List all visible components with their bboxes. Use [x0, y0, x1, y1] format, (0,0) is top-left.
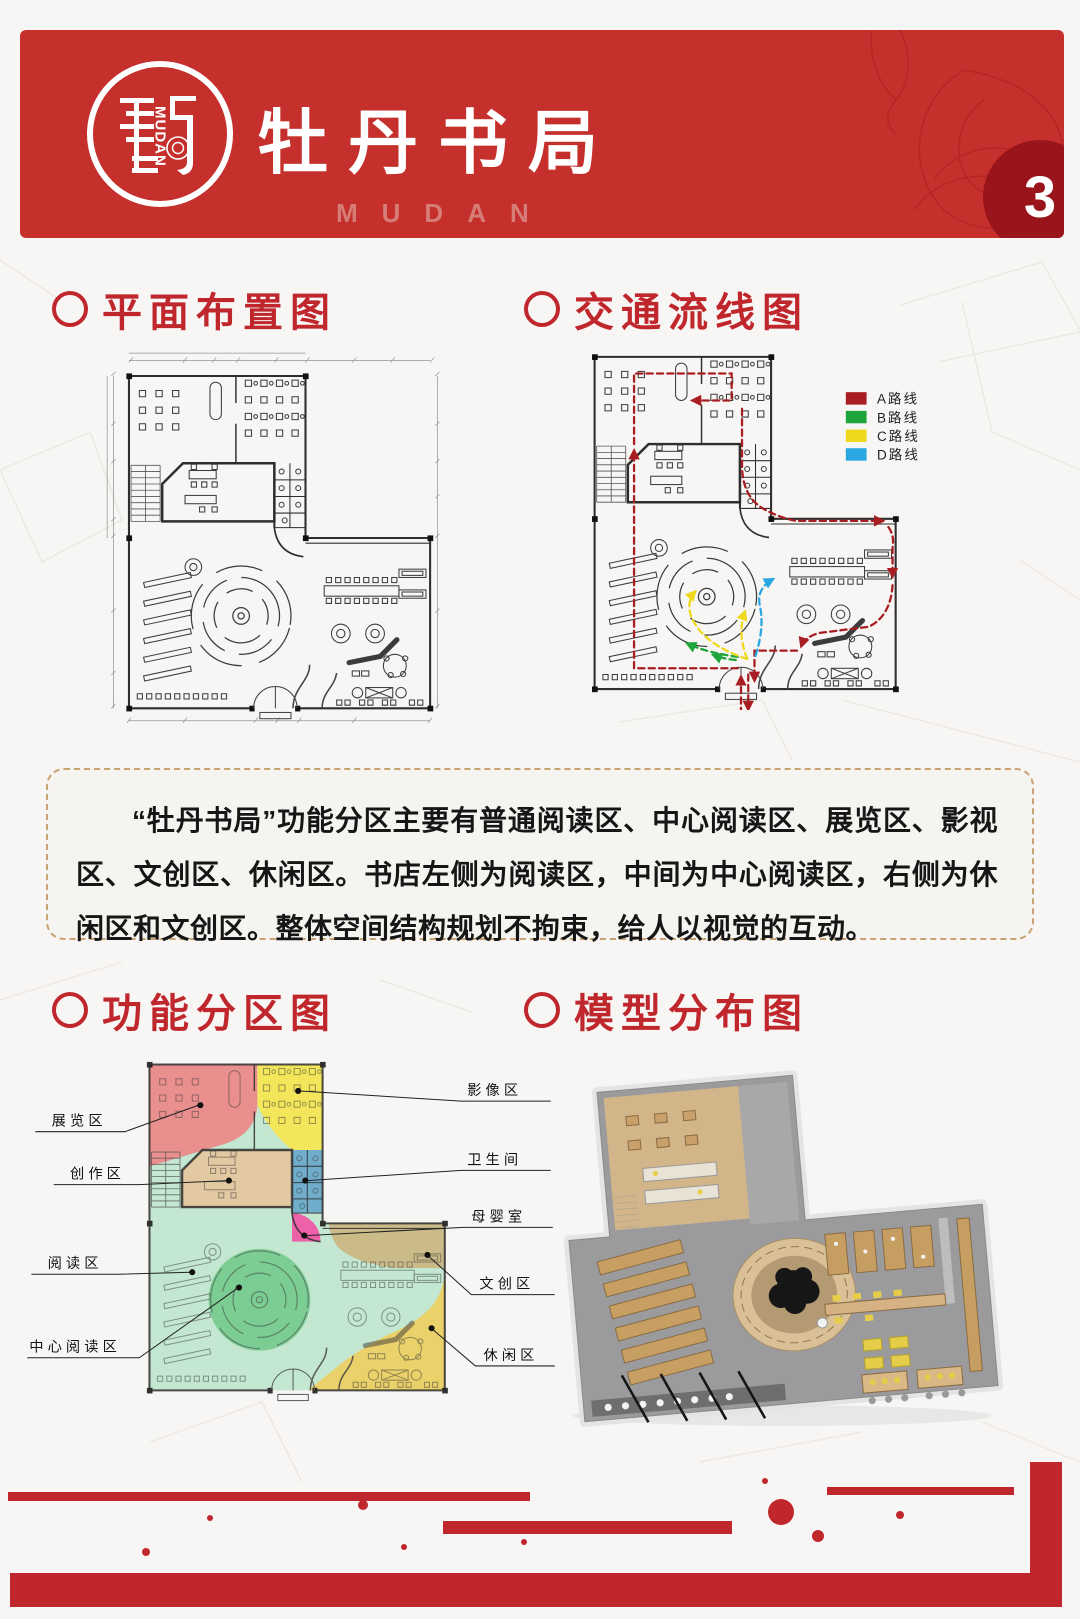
route-lines	[634, 373, 893, 710]
section-title: 交通流线图	[574, 280, 809, 338]
logo-vertical-text: MUDAN	[152, 106, 169, 167]
header-banner: MUDAN 牡丹书局 MUDAN 3	[20, 30, 1064, 238]
zone-label-exhibition: 展览区	[52, 1113, 107, 1130]
floor-plan-drawing	[104, 349, 453, 727]
zone-label-nursing: 母婴室	[471, 1208, 526, 1225]
section-title: 平面布置图	[102, 280, 337, 338]
brand-subtitle: MUDAN	[336, 198, 553, 229]
section-title: 功能分区图	[102, 981, 337, 1039]
zone-label-leisure: 休闲区	[483, 1347, 538, 1364]
legend-swatch-b	[846, 411, 867, 423]
route-a-path	[634, 373, 893, 710]
route-d-path	[756, 579, 774, 656]
circle-bullet-icon	[52, 992, 88, 1028]
zone-label-restroom: 卫生间	[467, 1151, 522, 1168]
zone-central-reading	[209, 1249, 311, 1351]
description-box: “牡丹书局”功能分区主要有普通阅读区、中心阅读区、展览区、影视区、文创区、休闲区…	[46, 768, 1034, 940]
description-text: “牡丹书局”功能分区主要有普通阅读区、中心阅读区、展览区、影视区、文创区、休闲区…	[76, 794, 998, 955]
zone-creation	[182, 1150, 292, 1207]
zone-label-creation: 创作区	[70, 1166, 125, 1183]
legend-label-a: A路线	[877, 392, 919, 407]
section-heading-floor-plan: 平面布置图	[52, 280, 337, 338]
zone-label-reading: 阅读区	[48, 1255, 103, 1272]
section-title: 模型分布图	[574, 981, 809, 1039]
mudan-logo: MUDAN	[82, 56, 238, 212]
brand-title: 牡丹书局	[258, 108, 618, 178]
traffic-flow-drawing: A路线 B路线 C路线 D路线	[578, 338, 1014, 710]
functional-zoning-diagram: 展览区 创作区 阅读区 中心阅读区 影像区 卫生间 母婴室 文创区 休闲区	[25, 1038, 555, 1425]
legend-swatch-c	[846, 430, 867, 442]
route-c-path	[689, 591, 747, 658]
legend-swatch-d	[846, 448, 867, 460]
circle-bullet-icon	[524, 992, 560, 1028]
zone-label-image: 影像区	[467, 1082, 522, 1099]
legend-swatch-a	[846, 392, 867, 404]
route-legend: A路线 B路线 C路线 D路线	[846, 392, 920, 463]
portfolio-page: MUDAN 牡丹书局 MUDAN 3 平面布置图 交通流线图 功能分区图 模型分…	[0, 0, 1080, 1619]
model-3d-render	[552, 1058, 1022, 1430]
route-b-path	[687, 643, 738, 660]
circle-bullet-icon	[524, 291, 560, 327]
page-number: 3	[1024, 164, 1056, 231]
circle-bullet-icon	[52, 291, 88, 327]
legend-label-d: D路线	[877, 448, 920, 463]
zoning-plan	[147, 1062, 448, 1401]
section-heading-model-distribution: 模型分布图	[524, 981, 809, 1039]
footer-decoration	[0, 1440, 1080, 1619]
section-heading-traffic-flow: 交通流线图	[524, 280, 809, 338]
legend-label-b: B路线	[877, 410, 919, 425]
zone-label-central-reading: 中心阅读区	[29, 1339, 121, 1356]
legend-label-c: C路线	[877, 429, 920, 444]
section-heading-functional-zoning: 功能分区图	[52, 981, 337, 1039]
zone-label-cultural-creative: 文创区	[479, 1276, 534, 1293]
